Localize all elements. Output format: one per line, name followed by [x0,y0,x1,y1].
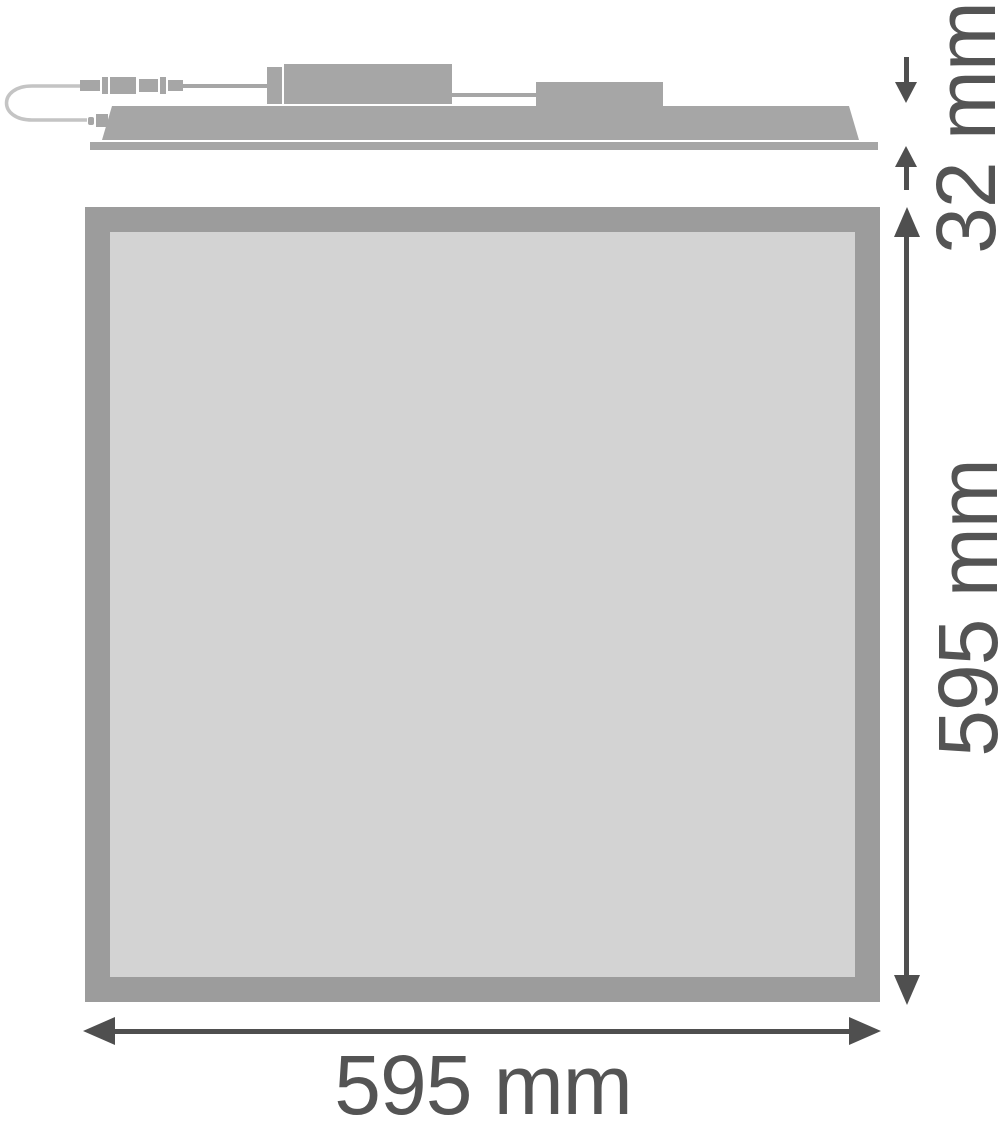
panel-face-strip [90,142,878,150]
driver-box [284,64,452,104]
cable-loop [0,70,100,130]
cable-entry-dot [88,117,94,125]
panel-width-label: 595 mm [133,1040,833,1123]
side-profile-view [0,0,900,160]
profile-height-label: 32 mm [921,0,1000,278]
cable-entry-gland [96,114,108,127]
height-arrow-up-icon [895,146,917,167]
height-arrow-down-icon [895,82,917,103]
height-arrow-top-shaft [904,57,909,84]
horizontal-arrow-right-icon [849,1017,881,1045]
junction-box [536,82,663,107]
panel-front-face [110,232,855,977]
wire-plug-to-driver [183,84,268,88]
vertical-arrow-down-icon [894,975,920,1005]
vertical-dimension-shaft [904,232,909,978]
driver-strain-relief [267,67,282,104]
horizontal-dimension-shaft [110,1029,855,1034]
panel-side-body [100,106,860,140]
wire-driver-to-junction [452,93,537,97]
height-arrow-bottom-shaft [904,166,909,190]
panel-height-label: 595 mm [923,408,1000,808]
dimension-drawing: 32 mm 595 mm 595 mm [0,0,1000,1123]
